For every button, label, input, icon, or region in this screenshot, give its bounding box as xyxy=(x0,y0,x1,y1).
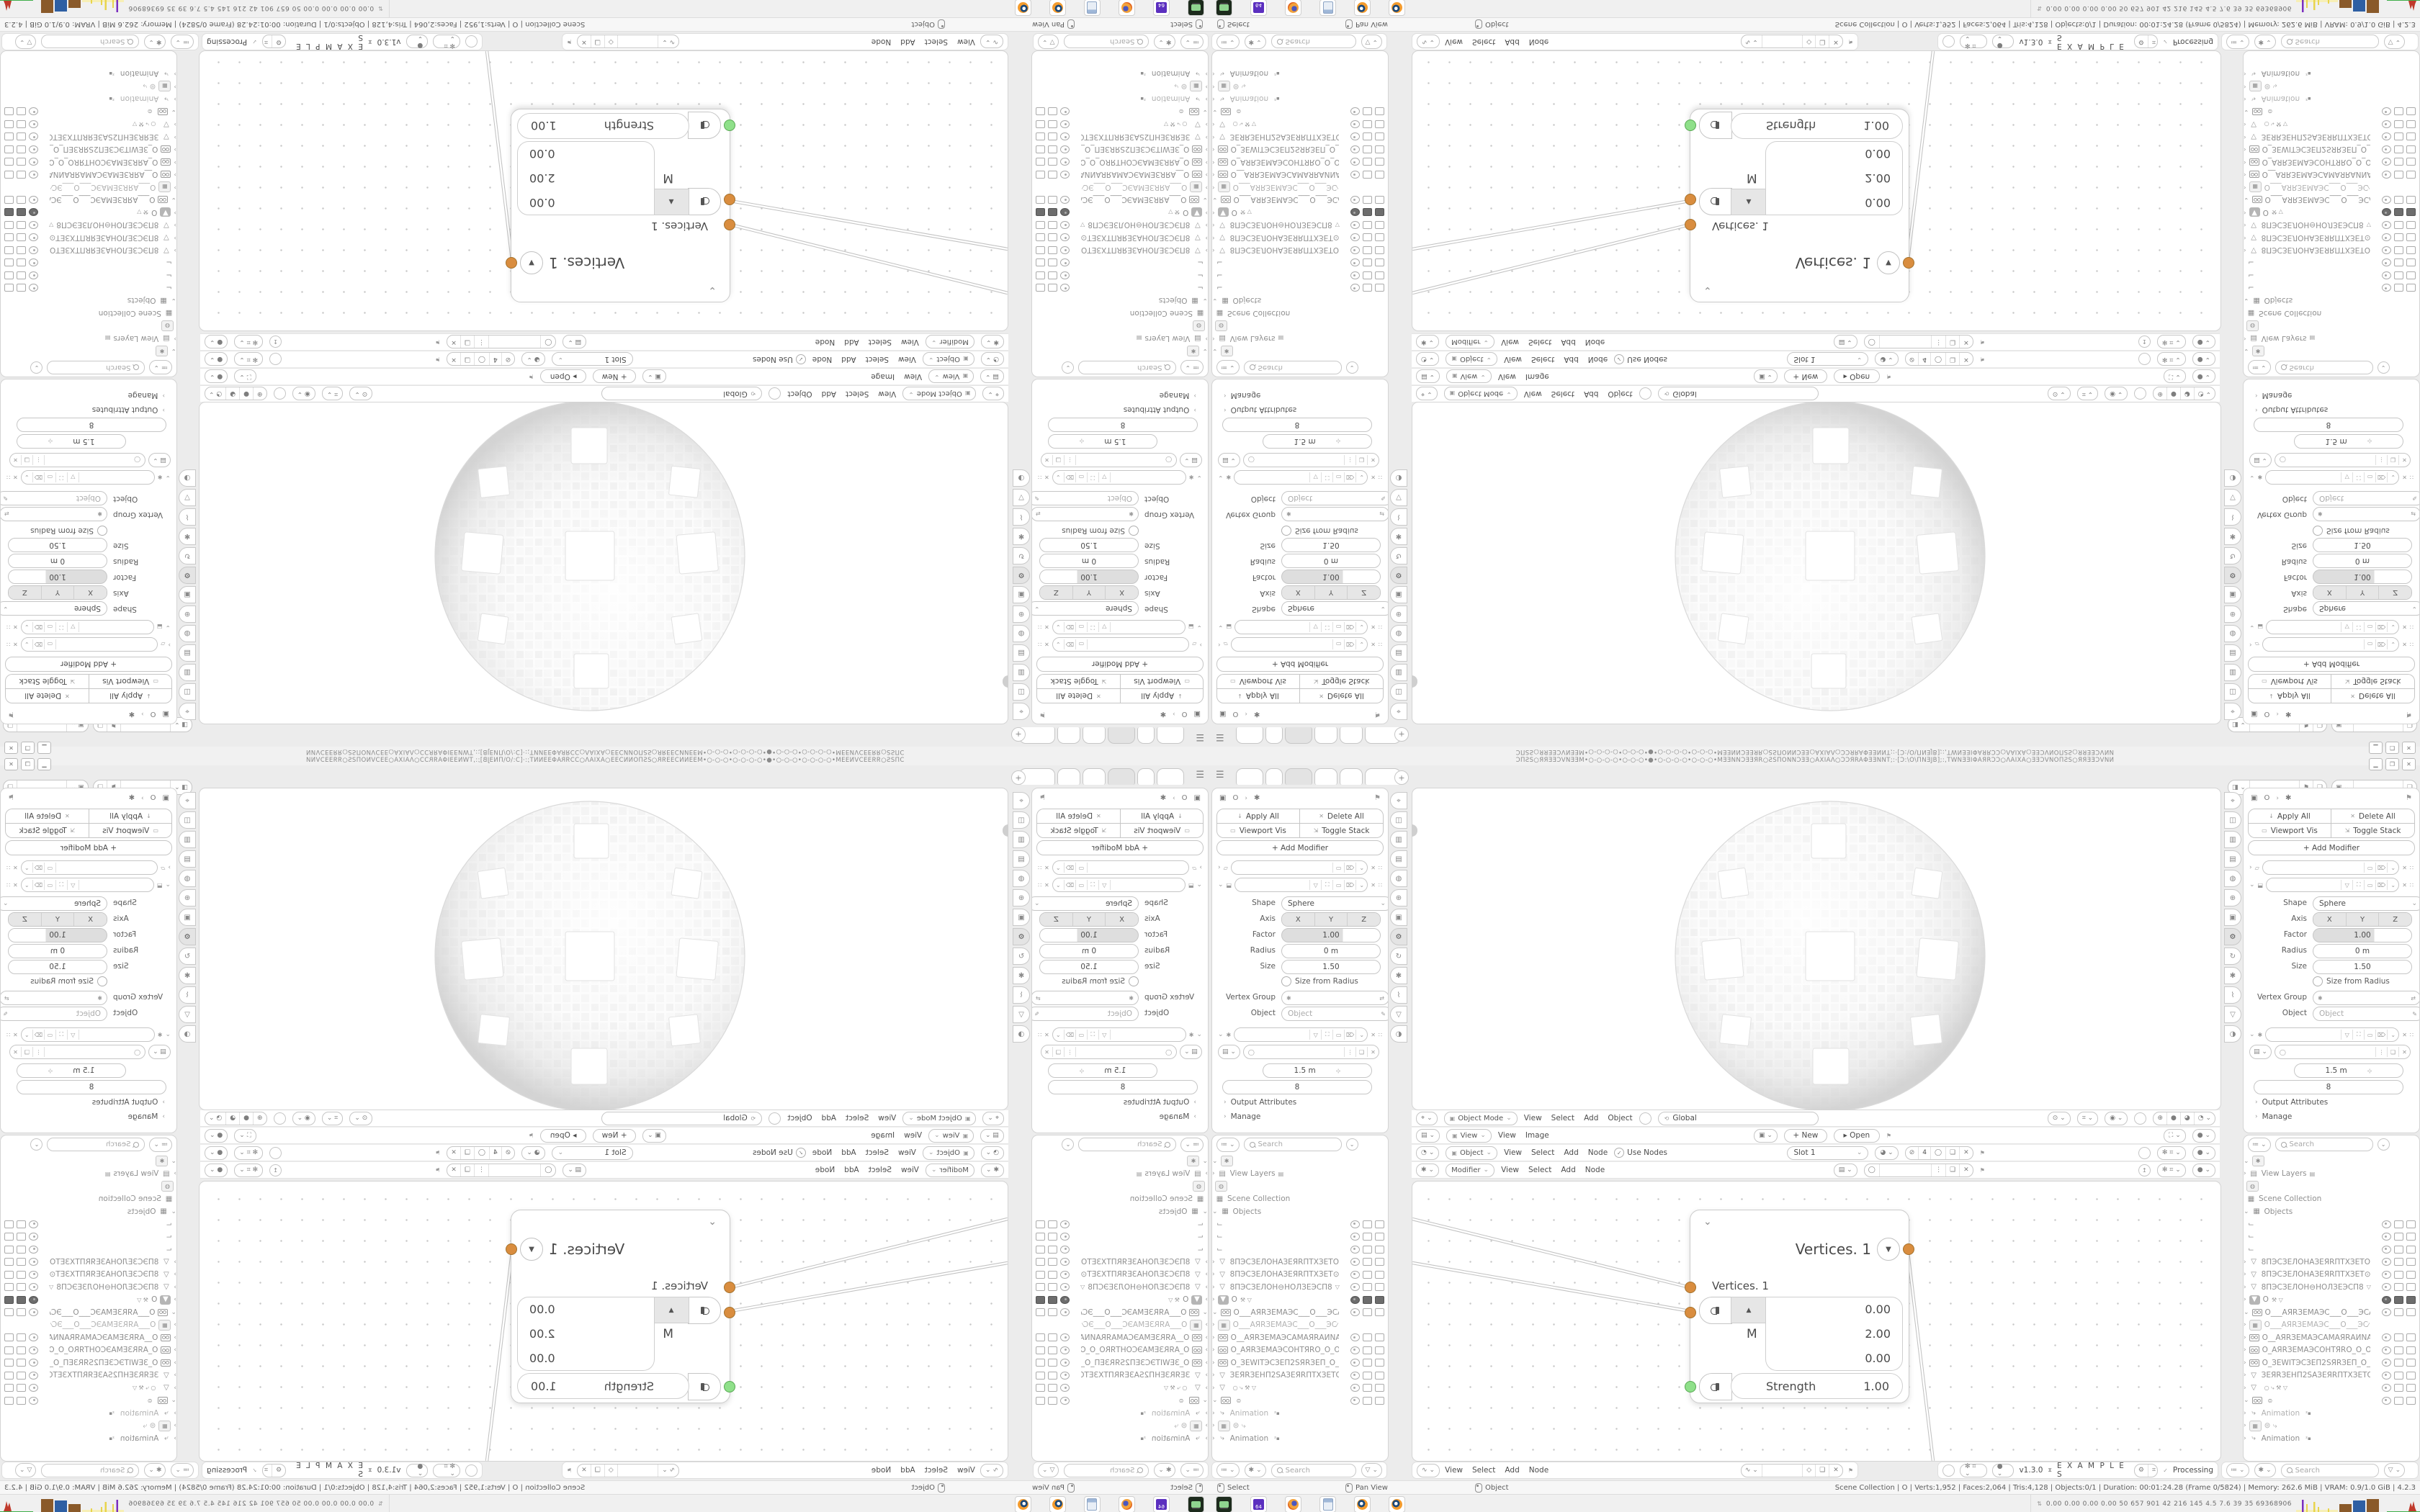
editor-type-icon[interactable]: ⌖ ⌄ xyxy=(982,1112,1004,1125)
workspace-tab[interactable] xyxy=(1137,727,1155,744)
add-modifier-button[interactable]: + Add Modifier xyxy=(1036,840,1204,855)
hide-eye-toggle[interactable] xyxy=(2382,158,2391,166)
node-group-selector[interactable]: ◯ ⋮ ❏ ✕ xyxy=(1864,336,1973,349)
object-name[interactable]: Animation xyxy=(2262,69,2300,78)
editor-type-icon[interactable]: ✱ ⌄ xyxy=(981,1164,1004,1177)
viewport-visibility-toggle[interactable] xyxy=(2394,1246,2403,1254)
object-field[interactable]: Object✎ xyxy=(2313,1007,2420,1021)
hide-eye-toggle[interactable] xyxy=(2382,1271,2391,1279)
up-arrow-button[interactable]: ▲ xyxy=(653,1297,689,1323)
hide-eye-toggle[interactable] xyxy=(29,1397,38,1405)
viewport-visibility-toggle[interactable] xyxy=(17,1258,26,1266)
menu-item[interactable]: Object xyxy=(787,390,812,398)
object-name[interactable]: 8ПЭСЗЕЛОН⊖НОЛЗЕЭСП8 xyxy=(1088,1283,1190,1292)
filter-icon[interactable]: ≔ ⌄ xyxy=(171,1463,194,1477)
taskbar-app-icon[interactable] xyxy=(1119,1496,1135,1512)
output-socket[interactable] xyxy=(1903,1243,1914,1255)
view-mode-select[interactable]: ▣View⌄ xyxy=(1446,370,1492,384)
geonodes-count-field[interactable]: 8 xyxy=(1048,1080,1198,1094)
manage-link[interactable]: Manage xyxy=(1160,391,1190,400)
hide-eye-toggle[interactable] xyxy=(1060,1333,1070,1341)
node-title[interactable]: Vertices. 1 xyxy=(549,1241,624,1258)
hide-eye-toggle[interactable] xyxy=(2382,208,2391,216)
outliner-row[interactable]: › ▽ 8ПЭСЗЕЛОНАЗЕЯRПТХЗЕТ⊙ТЗЕХТI xyxy=(1032,231,1208,244)
editor-type-icon[interactable]: ▤ ⌄ xyxy=(980,1129,1004,1143)
hide-eye-toggle[interactable] xyxy=(2382,221,2391,229)
outliner-row[interactable]: › ▦ ⊜ ⤷ xyxy=(1032,1420,1208,1433)
object-field[interactable]: Object✎ xyxy=(0,1007,107,1021)
view-mode-select[interactable]: ▣View⌄ xyxy=(928,370,974,384)
snap-icon[interactable]: ✻ ⌗ ⌄ xyxy=(2157,336,2186,349)
vector-input-socket[interactable] xyxy=(1685,1307,1696,1318)
outliner-row[interactable]: › O__АЯRЗЕМАЭСАМАЯRАИNАП_O xyxy=(1032,1331,1208,1344)
outliner-row[interactable]: ⌄ ⊜ xyxy=(1212,1395,1388,1408)
hide-eye-toggle[interactable] xyxy=(1350,1308,1360,1316)
search-input[interactable]: Search xyxy=(1078,361,1176,374)
outliner-row[interactable]: › ▦ ⊜ ⤷ xyxy=(1212,1420,1388,1433)
render-visibility-toggle[interactable] xyxy=(1375,1220,1384,1228)
geonodes-input-field[interactable]: 1.5 m⊹ xyxy=(1263,434,1372,449)
pin-icon[interactable]: ⚑ xyxy=(1980,1150,1985,1156)
object-name[interactable]: 8ПЭСЗЕЛОНАЗЕЯRПТХЗЕТ⊙ТЗЕХТI xyxy=(1081,233,1190,242)
expand-chevron-icon[interactable]: › xyxy=(1212,158,1215,166)
geonodes-count-field[interactable]: 8 xyxy=(2254,1080,2403,1094)
vector-y-field[interactable]: 2.00 xyxy=(1765,166,1903,191)
hide-eye-toggle[interactable] xyxy=(1350,158,1360,166)
render-visibility-toggle[interactable] xyxy=(1036,107,1045,115)
render-visibility-toggle[interactable] xyxy=(1375,1246,1384,1254)
object-name[interactable]: ЗЕЯRЗЕНП2SАЗЕЯRПТХЗЕТОТЗЕХТ xyxy=(1230,1371,1339,1380)
outliner-row[interactable]: ◍ xyxy=(2244,1180,2419,1193)
expand-chevron-icon[interactable]: ⌄ xyxy=(1212,108,1218,115)
expand-chevron-icon[interactable]: ⌄ xyxy=(1212,1208,1218,1215)
outliner-row[interactable]: ⌄ O___АЯRЗЕМАЭС___O___ЭСАМЗ xyxy=(1032,1306,1208,1319)
outliner-row[interactable]: › ▽ ЗЕЯRЗЕНП2SАЗЕЯRПТХЗЕТОТЗЕХТ xyxy=(2244,130,2419,143)
properties-tab[interactable]: ◫ xyxy=(2224,811,2241,829)
snap-icon[interactable]: ✻ ⌗ ⌄ xyxy=(234,336,263,349)
node-title[interactable]: Vertices. 1 xyxy=(1796,1241,1871,1258)
viewport-visibility-toggle[interactable] xyxy=(1363,1271,1372,1279)
object-name[interactable]: ⊜ ⤷ xyxy=(1233,81,1246,91)
menu-item[interactable]: Select xyxy=(869,338,892,346)
object-name[interactable]: O___АЯRЗЕМАЭС___O___ЭСАМЗ xyxy=(2265,195,2370,204)
properties-tab[interactable]: ◍ xyxy=(2224,870,2241,887)
hide-eye-toggle[interactable] xyxy=(2382,1246,2391,1254)
outliner-row[interactable]: ◍ xyxy=(1,320,176,333)
outliner-row[interactable]: › ▦ ⊜ ⤷ xyxy=(1,80,176,93)
shading-icon[interactable]: ● ⌄ xyxy=(205,1146,228,1160)
geonodes-input-field[interactable]: 1.5 m⊹ xyxy=(2294,1063,2403,1078)
expand-chevron-icon[interactable]: › xyxy=(1205,1259,1208,1266)
viewport-visibility-toggle[interactable] xyxy=(1048,1258,1057,1266)
factor-slider[interactable]: 1.00 xyxy=(8,570,107,584)
hide-eye-toggle[interactable] xyxy=(29,1372,38,1380)
properties-tab[interactable]: ↻ xyxy=(1013,948,1030,965)
menu-item[interactable]: Add xyxy=(1505,1466,1519,1475)
hide-eye-toggle[interactable] xyxy=(29,158,38,166)
outliner-row[interactable]: › ▦ O___АЯRЗЕМАЭС___O___ЭС⁄ xyxy=(1212,181,1388,194)
output-attributes-link[interactable]: Output Attributes xyxy=(92,1098,158,1107)
properties-tab[interactable]: ▽ xyxy=(2224,1006,2241,1023)
render-visibility-toggle[interactable] xyxy=(2406,1333,2416,1341)
strength-input-socket[interactable] xyxy=(724,1381,735,1392)
outliner-row[interactable]: ⌙ xyxy=(1,1243,176,1256)
hide-eye-toggle[interactable] xyxy=(2382,1296,2391,1304)
expand-chevron-icon[interactable]: › xyxy=(2249,641,2252,648)
menu-item[interactable]: Node xyxy=(1588,1148,1608,1157)
object-name[interactable]: O___АЯRЗЕМАЭС___O___ЭСАМЗ xyxy=(1081,1308,1186,1317)
properties-tab[interactable]: ↻ xyxy=(2224,547,2241,564)
hide-eye-toggle[interactable] xyxy=(2382,1333,2391,1341)
node-group-field[interactable]: ◯ ⋮❏✕ xyxy=(1243,453,1379,467)
hide-eye-toggle[interactable] xyxy=(29,1359,38,1367)
drag-handle-icon[interactable]: ∷ xyxy=(6,1032,10,1038)
viewport-visibility-toggle[interactable] xyxy=(2394,246,2403,254)
axis-x-button[interactable]: X xyxy=(1105,913,1138,926)
examples-label[interactable]: E X A M P L E S xyxy=(2057,33,2129,50)
apply-all-button[interactable]: ↓Apply All xyxy=(1216,809,1300,824)
pin-icon[interactable]: ⚑ xyxy=(2406,794,2412,802)
object-name[interactable]: ⊜ ⤷ xyxy=(1174,81,1187,91)
add-modifier-button[interactable]: + Add Modifier xyxy=(5,657,172,672)
filter-icon[interactable]: ≔ ⌄ xyxy=(1216,35,1240,49)
hide-eye-toggle[interactable] xyxy=(1350,145,1360,153)
filter-icon[interactable]: ≔ ⌄ xyxy=(1216,1138,1240,1152)
object-name[interactable]: View Layers xyxy=(1144,1169,1190,1178)
vector-z-field[interactable]: 0.00 xyxy=(517,1346,655,1371)
toggle-stack-button[interactable]: ⇲Toggle Stack xyxy=(5,674,89,688)
menu-item[interactable]: Add xyxy=(900,1466,915,1475)
workspace-tab[interactable] xyxy=(1314,727,1337,744)
hamburger-menu-icon[interactable]: ☰ xyxy=(1216,732,1224,742)
radius-field[interactable]: 0 m xyxy=(1039,554,1139,568)
collapse-chevron-icon[interactable]: ⌄ xyxy=(708,1216,717,1228)
expand-chevron-icon[interactable]: › xyxy=(174,234,176,241)
expand-chevron-icon[interactable]: › xyxy=(2244,95,2246,102)
viewport-vis-button[interactable]: ▭Viewport Vis xyxy=(1120,674,1204,688)
pin-icon[interactable]: ⚑ xyxy=(1848,39,1853,45)
outliner-row[interactable]: › ▽ ЗЕЯRЗЕНП2SАЗЕЯRПТХЗЕТОТЗЕХТ xyxy=(1212,130,1388,143)
viewport-visibility-toggle[interactable] xyxy=(17,1296,26,1304)
render-visibility-toggle[interactable] xyxy=(4,1246,14,1254)
object-name[interactable]: Animation xyxy=(1230,69,1269,78)
geonodes-count-field[interactable]: 8 xyxy=(1222,418,1372,432)
manage-link[interactable]: Manage xyxy=(1160,1112,1190,1121)
outliner-row[interactable]: ▦ Scene Collection xyxy=(1,1193,176,1206)
menu-item[interactable]: Add xyxy=(844,338,859,346)
properties-tab[interactable]: ◍ xyxy=(1390,625,1407,642)
shape-select[interactable]: Sphere⌄ xyxy=(1031,601,1139,616)
outliner-row[interactable]: › ▽ 8ПЭСЗЕЛОНАЗЕЯRПТХЗЕТ⊙ТЗЕХТI xyxy=(2244,231,2419,244)
node-dropdown-button[interactable]: ▼ xyxy=(1877,251,1900,274)
workspace-tab[interactable] xyxy=(1083,768,1106,785)
pin-icon[interactable]: ⚑ xyxy=(8,710,14,718)
object-mode-select[interactable]: ▣Object⌄ xyxy=(923,353,974,366)
outliner-row[interactable]: › O_ЗЕWITЭСЗЕП2SЯRЗЕП_O_ПЗЕЯF xyxy=(1032,1356,1208,1369)
object-name[interactable]: O xyxy=(151,208,157,217)
search-input[interactable]: Search xyxy=(1064,35,1149,49)
size-field[interactable]: 1.50 xyxy=(2313,960,2412,974)
menu-item[interactable]: Select xyxy=(1531,355,1554,364)
outliner-row[interactable]: › ▽ ЗЕЯRЗЕНП2SАЗЕЯRПТХЗЕТОТЗЕХТ xyxy=(1212,1369,1388,1382)
menu-item[interactable]: View xyxy=(898,1148,916,1157)
expand-chevron-icon[interactable]: › xyxy=(1212,1296,1215,1303)
expand-chevron-icon[interactable]: › xyxy=(174,1422,176,1429)
hide-eye-toggle[interactable] xyxy=(29,1346,38,1354)
expand-chevron-icon[interactable]: › xyxy=(1205,120,1208,127)
expand-chevron-icon[interactable]: › xyxy=(1205,234,1208,241)
modifier-name-field[interactable]: ▽⛶▭⌦⌄ xyxy=(1052,1027,1186,1042)
outliner-row[interactable]: ◍ xyxy=(2244,320,2419,333)
expand-chevron-icon[interactable]: › xyxy=(1212,234,1215,241)
menu-item[interactable]: View xyxy=(878,1114,896,1122)
strength-field[interactable]: Strength 1.00 xyxy=(1731,113,1903,139)
render-visibility-toggle[interactable] xyxy=(1375,107,1384,115)
object-field[interactable]: Object✎ xyxy=(1031,1007,1139,1021)
render-visibility-toggle[interactable] xyxy=(2406,107,2416,115)
modifier-name-field[interactable]: ▽⛶▭⌦⌄ xyxy=(1052,470,1186,485)
object-name[interactable]: ⊜ ⤷ xyxy=(2264,1421,2277,1431)
object-name[interactable]: View Layers xyxy=(113,334,158,343)
filter-icon[interactable]: ≔ ⌄ xyxy=(1180,35,1204,49)
vertex-group-field[interactable]: ✱⇄ xyxy=(1031,507,1139,521)
viewport-visibility-toggle[interactable] xyxy=(1048,233,1057,241)
snap-icon[interactable]: ⊙ ⌄ xyxy=(2048,387,2071,401)
vertices-node[interactable]: ⌄ Vertices. 1 ▼ Vertices. 1 ▲ M 0.00 2.0… xyxy=(511,109,730,302)
expand-chevron-icon[interactable]: › xyxy=(168,864,171,871)
properties-tab[interactable]: ◫ xyxy=(1390,811,1407,829)
render-visibility-toggle[interactable] xyxy=(1375,120,1384,128)
snap-icon[interactable]: ✻ ⌗ ⌄ xyxy=(2157,1164,2186,1177)
expand-chevron-icon[interactable]: › xyxy=(174,184,176,191)
apply-all-button[interactable]: ↓Apply All xyxy=(89,688,172,703)
outliner-row[interactable]: › ▦ ⊜ ⤷ xyxy=(1212,80,1388,93)
viewport-visibility-toggle[interactable] xyxy=(17,208,26,216)
render-visibility-toggle[interactable] xyxy=(1036,258,1045,266)
outliner-row[interactable]: › ▽ ЗЕЯRЗЕНП2SАЗЕЯRПТХЗЕТОТЗЕХТ xyxy=(1,1369,176,1382)
menu-item[interactable]: Select xyxy=(925,37,948,46)
object-name[interactable]: Objects xyxy=(2264,1207,2293,1216)
object-name[interactable]: O xyxy=(1232,1295,1237,1304)
hide-eye-toggle[interactable] xyxy=(1350,284,1360,292)
expand-chevron-icon[interactable]: › xyxy=(1212,246,1215,253)
workspace-tab[interactable] xyxy=(1265,768,1283,785)
shading-icon[interactable]: ● ⌄ xyxy=(406,35,429,49)
funnel-filter-icon[interactable]: ▽ ⌄ xyxy=(15,1463,36,1477)
expand-chevron-icon[interactable]: › xyxy=(2244,209,2246,216)
expand-chevron-icon[interactable]: › xyxy=(2244,1284,2246,1291)
hide-eye-toggle[interactable] xyxy=(29,1220,38,1228)
render-visibility-toggle[interactable] xyxy=(1375,1333,1384,1341)
expand-chevron-icon[interactable]: › xyxy=(1212,1359,1215,1367)
object-name[interactable]: 8ПЭСЗЕЛОНАЗЕЯRПТХЗЕТ⊙ТЗЕХТI xyxy=(2262,1270,2370,1279)
collapse-chevron-icon[interactable]: ⌄ xyxy=(1218,881,1224,888)
collapse-icon[interactable]: ⌄ xyxy=(2378,361,2390,374)
radius-field[interactable]: 0 m xyxy=(2313,944,2412,958)
viewport-visibility-toggle[interactable] xyxy=(17,1233,26,1241)
viewport-visibility-toggle[interactable] xyxy=(17,107,26,115)
render-visibility-toggle[interactable] xyxy=(2406,1308,2416,1316)
hide-eye-toggle[interactable] xyxy=(1350,196,1360,204)
workspace-tab[interactable] xyxy=(1108,727,1135,744)
hide-eye-toggle[interactable] xyxy=(1060,233,1070,241)
outliner-row[interactable]: › ⤷ Animation ²▪ xyxy=(1032,68,1208,81)
expand-chevron-icon[interactable]: ⌄ xyxy=(1202,297,1208,304)
properties-tab[interactable]: ⌇ xyxy=(2224,986,2241,1004)
viewport-visibility-toggle[interactable] xyxy=(1363,1359,1372,1367)
viewport-visibility-toggle[interactable] xyxy=(2394,1346,2403,1354)
outliner-row[interactable]: › O_АЯRЗЕМАЭСОНТЯRО_O_ОЯRТН xyxy=(2244,1344,2419,1357)
hide-eye-toggle[interactable] xyxy=(1350,120,1360,128)
outliner-row[interactable]: › ⤷ Animation ²▪ xyxy=(2244,1432,2419,1445)
pin-icon[interactable]: ⚑ xyxy=(435,356,440,363)
pin-icon[interactable]: ⚑ xyxy=(567,1467,572,1474)
object-name[interactable]: O_ЗЕWITЭСЗЕП2SЯRЗЕП_O_ПЗЕЯF xyxy=(2262,1359,2370,1367)
factor-slider[interactable]: 1.00 xyxy=(1039,928,1139,942)
editor-type-icon[interactable]: ◔ ⌄ xyxy=(981,353,1004,366)
properties-tab[interactable]: ↻ xyxy=(1390,547,1407,564)
size-from-radius-radio[interactable]: Size from Radius xyxy=(2313,526,2390,536)
object-name[interactable]: Objects xyxy=(1233,296,1262,305)
pin-icon[interactable]: ⚑ xyxy=(1980,1167,1985,1174)
render-visibility-toggle[interactable] xyxy=(1375,145,1384,153)
hide-eye-toggle[interactable] xyxy=(1060,258,1070,266)
use-nodes-checkbox[interactable]: ✓ Use Nodes xyxy=(1614,1148,1667,1158)
remove-modifier-icon[interactable]: ✕ xyxy=(1371,624,1376,631)
properties-tab[interactable]: ⌖ xyxy=(179,792,196,809)
outliner-row[interactable]: ⌙ xyxy=(1212,1218,1388,1231)
taskbar-app-icon[interactable] xyxy=(1250,0,1267,16)
expand-chevron-icon[interactable]: › xyxy=(1199,864,1202,871)
expand-chevron-icon[interactable]: › xyxy=(2244,83,2246,90)
hamburger-menu-icon[interactable]: ☰ xyxy=(1196,732,1204,742)
hide-eye-toggle[interactable] xyxy=(29,208,38,216)
new-image-button[interactable]: + New xyxy=(1784,370,1827,384)
render-visibility-toggle[interactable] xyxy=(1375,271,1384,279)
properties-tab[interactable]: ↻ xyxy=(2224,948,2241,965)
outliner-row[interactable]: ⌙ xyxy=(1,269,176,282)
render-visibility-toggle[interactable] xyxy=(2406,1220,2416,1228)
object-name[interactable]: Animation xyxy=(120,69,159,78)
menu-item[interactable]: View xyxy=(904,1131,922,1140)
viewport-visibility-toggle[interactable] xyxy=(1048,1333,1057,1341)
render-visibility-toggle[interactable] xyxy=(2406,132,2416,140)
render-visibility-toggle[interactable] xyxy=(1036,1271,1045,1279)
snap-icon[interactable]: ✻ ⌗ ⌄ xyxy=(234,353,263,366)
delete-all-button[interactable]: ✕Delete All xyxy=(5,688,89,703)
properties-tab[interactable]: ✱ xyxy=(1390,967,1407,984)
vertices-input-socket[interactable] xyxy=(1685,219,1696,230)
outliner-row[interactable]: ⌄ ▦ Objects xyxy=(2244,294,2419,307)
snapping-icon[interactable]: ↥ xyxy=(269,336,282,348)
radius-field[interactable]: 0 m xyxy=(1281,944,1381,958)
viewport-visibility-toggle[interactable] xyxy=(2394,233,2403,241)
object-name[interactable]: ЗЕЯRЗЕНП2SАЗЕЯRПТХЗЕТОТЗЕХТ xyxy=(1230,132,1339,141)
shading-mode-buttons[interactable]: ⊕●◕◔ ⌄ xyxy=(2153,1112,2215,1125)
view-mode-select[interactable]: ▣View⌄ xyxy=(1446,1129,1492,1143)
render-visibility-toggle[interactable] xyxy=(1036,1384,1045,1392)
snap-icon[interactable]: ✻ ⌗ ⌄ xyxy=(234,1164,263,1177)
view-mode-select[interactable]: ▣View⌄ xyxy=(928,1129,974,1143)
outliner-row[interactable]: › ▦ O___АЯRЗЕМАЭС___O___ЭС⁄ xyxy=(1032,1319,1208,1332)
properties-tab[interactable]: ✱ xyxy=(2224,528,2241,545)
render-visibility-toggle[interactable] xyxy=(2406,221,2416,229)
strength-input-socket[interactable] xyxy=(1685,1381,1696,1392)
breadcrumb-object[interactable]: O xyxy=(151,710,156,718)
addon-buttons[interactable]: ⚙ ⌗ xyxy=(2134,35,2158,49)
outliner-row[interactable]: › ▽ 8ПЭСЗЕЛОН⊖НОЛЗЕЭСП8 ▽ xyxy=(1212,1281,1388,1294)
delete-all-button[interactable]: ✕Delete All xyxy=(1300,809,1384,824)
viewport-visibility-toggle[interactable] xyxy=(17,1397,26,1405)
menu-item[interactable]: Object xyxy=(787,1114,812,1122)
object-name[interactable]: O___АЯRЗЕМАЭС___O___ЭС⁄ xyxy=(2264,183,2370,192)
hide-eye-toggle[interactable] xyxy=(1060,1220,1070,1228)
properties-tab[interactable]: ✱ xyxy=(179,967,196,984)
viewport-visibility-toggle[interactable] xyxy=(1048,258,1057,266)
expand-chevron-icon[interactable]: › xyxy=(174,120,176,127)
expand-chevron-icon[interactable]: › xyxy=(174,133,176,140)
breadcrumb-object[interactable]: O xyxy=(1232,710,1238,718)
object-name[interactable]: O__АЯRЗЕМАЭСАМАЯRАИNАП_O xyxy=(1081,170,1189,179)
render-visibility-toggle[interactable] xyxy=(1036,1308,1045,1316)
hide-eye-toggle[interactable] xyxy=(1350,1220,1360,1228)
factor-slider[interactable]: 1.00 xyxy=(1281,570,1381,584)
properties-tab[interactable]: ▣ xyxy=(1390,586,1407,603)
image-browse-icon[interactable]: ▣ ⌄ xyxy=(1754,370,1778,384)
up-arrow-button[interactable]: ▲ xyxy=(1731,189,1767,215)
radius-field[interactable]: 0 m xyxy=(2313,554,2412,568)
outliner-row[interactable]: › ▽ 8ПЭСЗЕЛОНАЗЕЯRПТХЗЕТ⊙ТЗЕХТI xyxy=(1212,1269,1388,1282)
expand-chevron-icon[interactable]: › xyxy=(174,1435,176,1442)
vector-input-socket[interactable] xyxy=(724,1307,735,1318)
add-modifier-button[interactable]: + Add Modifier xyxy=(1036,657,1204,672)
viewport-visibility-toggle[interactable] xyxy=(1363,1346,1372,1354)
expand-chevron-icon[interactable]: ⌄ xyxy=(1202,347,1208,354)
object-name[interactable]: Scene Collection xyxy=(1227,309,1290,318)
expand-chevron-icon[interactable]: › xyxy=(2244,221,2246,228)
hide-eye-toggle[interactable] xyxy=(1060,196,1070,204)
viewport-visibility-toggle[interactable] xyxy=(1048,132,1057,140)
outliner-row[interactable]: › ▤ View Layers ▤ xyxy=(1212,332,1388,345)
menu-item[interactable]: Select xyxy=(1531,1148,1554,1157)
render-passes-group[interactable]: ⊘ 4 ◯ ❏ ✕ xyxy=(447,1146,515,1160)
render-visibility-toggle[interactable] xyxy=(1036,196,1045,204)
shading-mode-buttons[interactable]: ⊕●◕◔ ⌄ xyxy=(205,387,267,401)
node-socket-icon[interactable] xyxy=(465,1464,478,1477)
new-image-button[interactable]: + New xyxy=(593,370,636,384)
outliner-row[interactable]: › O_АЯRЗЕМАЭСОНТЯRО_O_ОЯRТН xyxy=(2244,156,2419,168)
object-name[interactable]: O xyxy=(151,1295,157,1304)
pin-icon[interactable]: ⚑ xyxy=(1374,794,1381,802)
expand-chevron-icon[interactable]: › xyxy=(1218,864,1221,871)
outliner-row[interactable]: ⌄ ✱ xyxy=(1032,345,1208,358)
geonodes-count-field[interactable]: 8 xyxy=(17,418,166,432)
properties-tab[interactable]: ⚙ xyxy=(2224,567,2241,584)
proportional-edit-icon[interactable] xyxy=(1639,388,1652,400)
expand-chevron-icon[interactable]: › xyxy=(2244,1170,2246,1177)
shading-icon[interactable]: ● ⌄ xyxy=(2192,336,2215,349)
taskbar-app-icon[interactable] xyxy=(1354,0,1371,16)
snapping-icon[interactable]: ↥ xyxy=(2138,1164,2151,1176)
render-visibility-toggle[interactable] xyxy=(1036,208,1045,216)
taskbar-app-icon[interactable] xyxy=(1216,1496,1232,1512)
properties-tab[interactable]: ▣ xyxy=(179,586,196,603)
pin-icon[interactable]: ⚑ xyxy=(8,794,14,802)
display-mode-icon[interactable]: ✱ ⌄ xyxy=(144,1463,166,1477)
drag-handle-icon[interactable]: ∷ xyxy=(6,474,10,481)
axis-buttons[interactable]: X Y Z xyxy=(1039,585,1139,600)
menu-item[interactable]: View xyxy=(901,338,919,346)
